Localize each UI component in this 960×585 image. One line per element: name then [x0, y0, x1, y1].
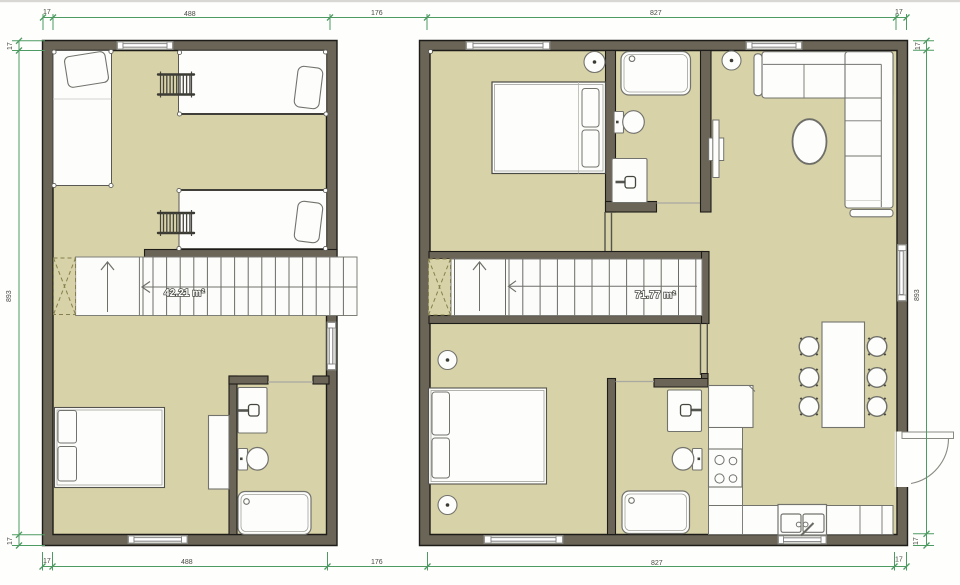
svg-text:827: 827	[650, 10, 662, 17]
svg-text:42.21 m²: 42.21 m²	[164, 288, 205, 299]
svg-text:17: 17	[43, 9, 51, 16]
svg-text:17: 17	[43, 558, 51, 565]
svg-text:17: 17	[895, 557, 903, 564]
svg-text:17: 17	[7, 537, 14, 545]
svg-text:71.77 m²: 71.77 m²	[635, 290, 676, 301]
svg-text:893: 893	[914, 289, 921, 301]
svg-text:17: 17	[915, 42, 922, 50]
svg-text:176: 176	[371, 559, 383, 566]
svg-text:17: 17	[7, 42, 14, 50]
svg-text:488: 488	[181, 559, 193, 566]
svg-text:827: 827	[651, 560, 663, 567]
svg-text:488: 488	[184, 11, 196, 18]
svg-text:17: 17	[913, 537, 920, 545]
svg-text:176: 176	[371, 10, 383, 17]
svg-text:17: 17	[895, 9, 903, 16]
svg-text:893: 893	[6, 290, 13, 302]
